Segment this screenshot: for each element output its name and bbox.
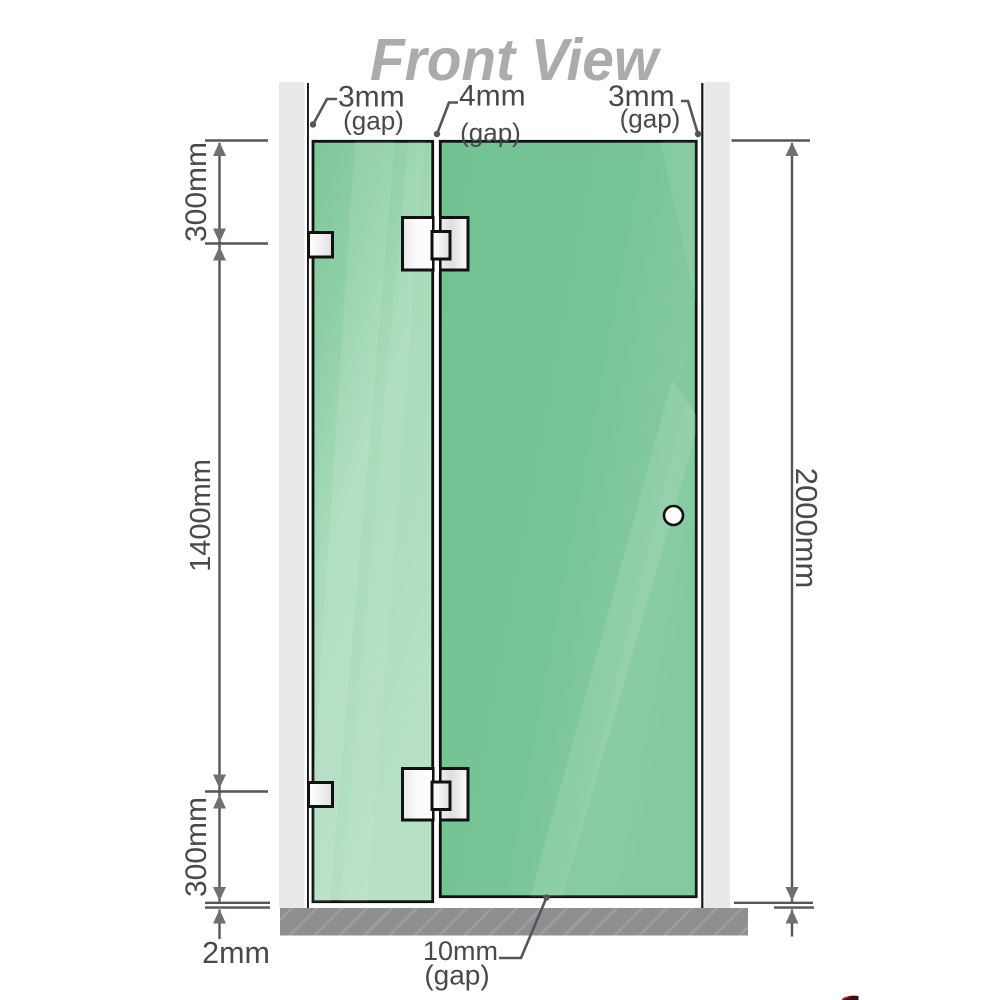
svg-text:4mm: 4mm bbox=[459, 80, 526, 113]
svg-text:300mm: 300mm bbox=[180, 797, 213, 897]
svg-text:(gap): (gap) bbox=[424, 960, 489, 991]
svg-text:(gap): (gap) bbox=[343, 106, 404, 136]
svg-text:2mm: 2mm bbox=[202, 936, 270, 970]
svg-text:1400mm: 1400mm bbox=[185, 459, 217, 572]
svg-text:300mm: 300mm bbox=[180, 142, 213, 242]
svg-text:(gap): (gap) bbox=[620, 104, 681, 134]
svg-text:2000mm: 2000mm bbox=[789, 468, 824, 589]
svg-text:(gap): (gap) bbox=[460, 118, 521, 148]
